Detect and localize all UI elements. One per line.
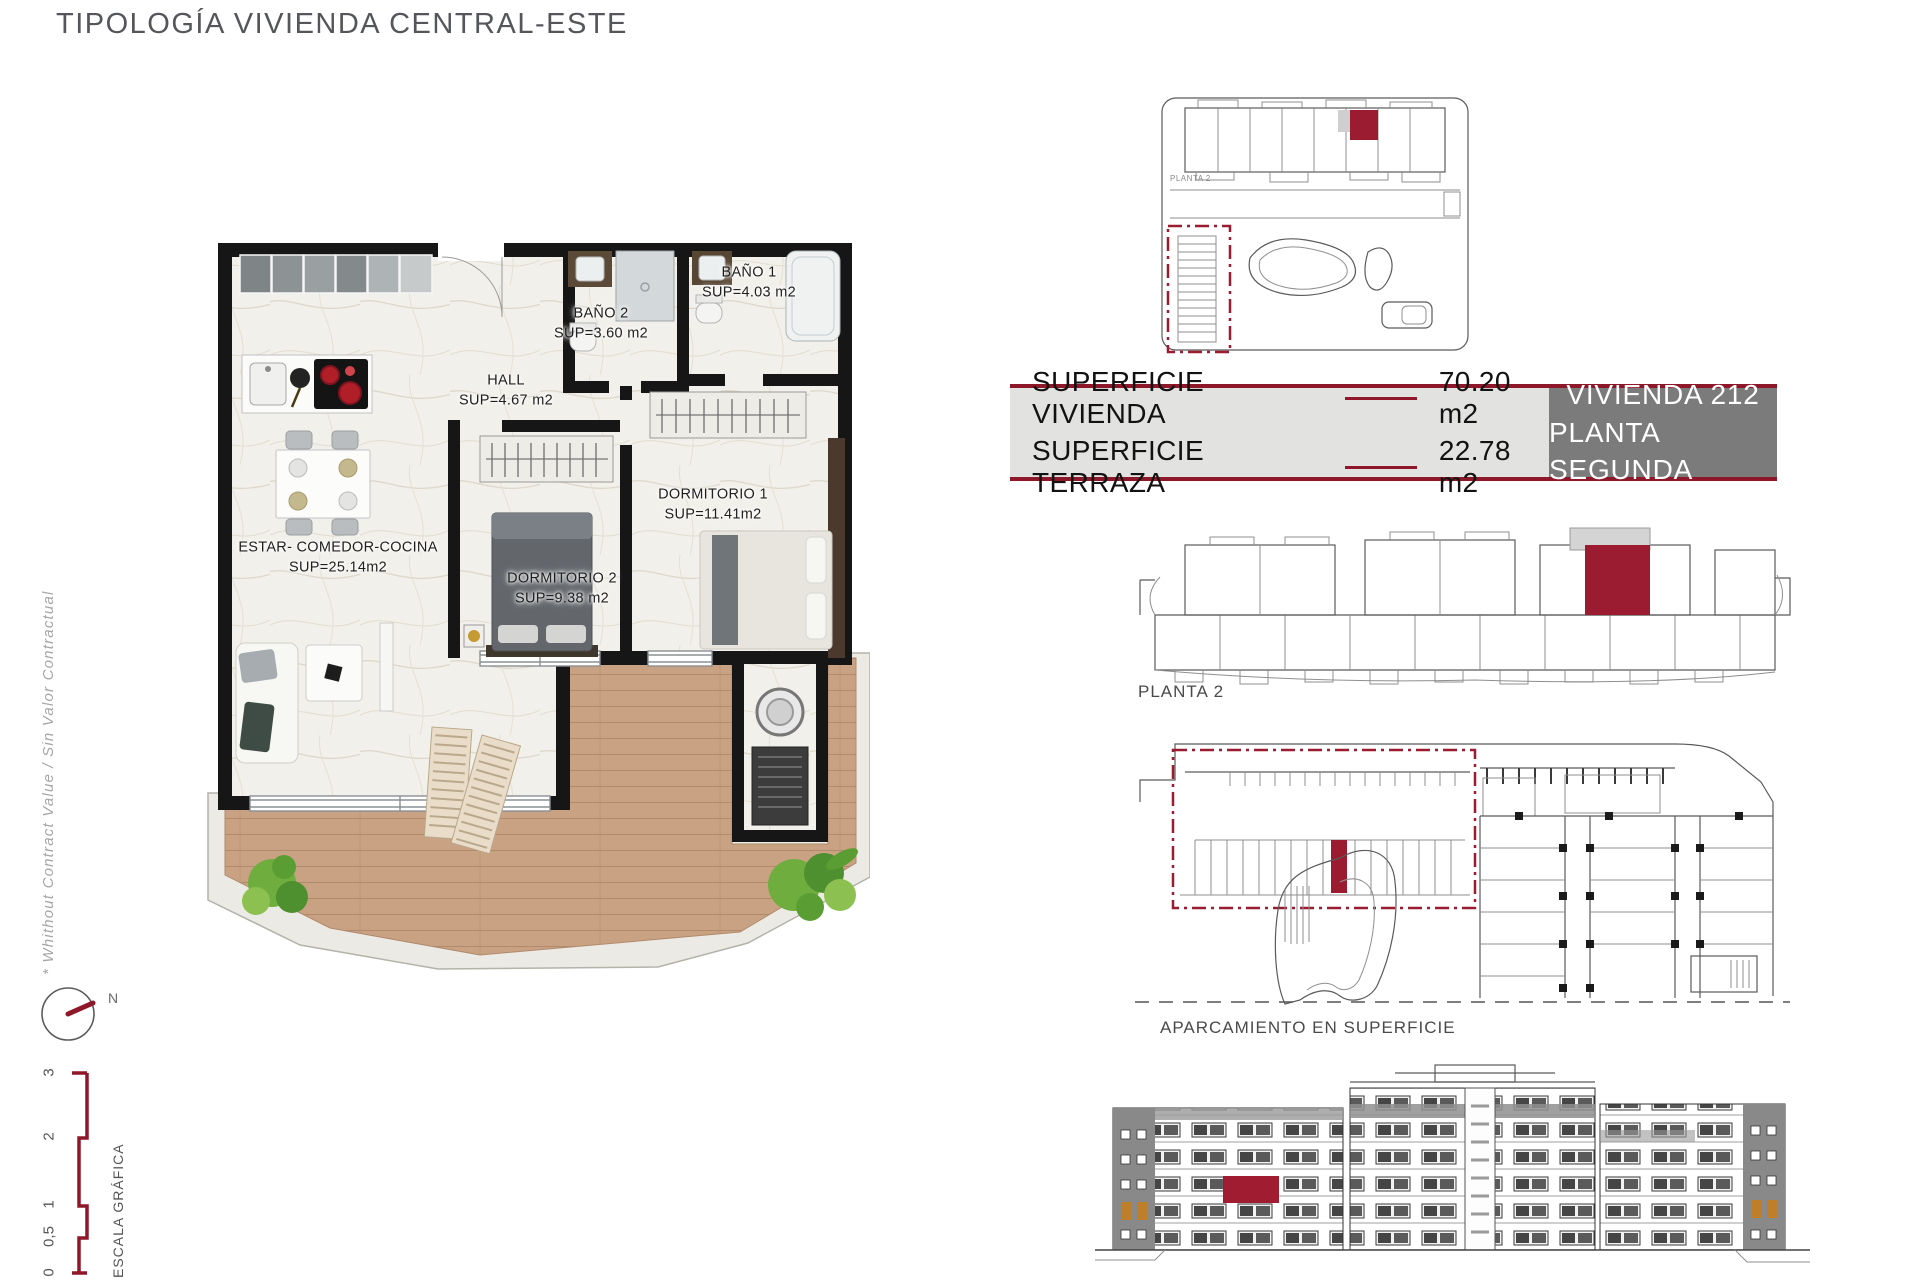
unit-floor: PLANTA SEGUNDA [1549,414,1777,490]
room-label-estar: ESTAR- COMEDOR-COCINASUP=25.14m2 [238,538,437,577]
siteplan-label: PLANTA 2 [1170,174,1211,183]
dash-rule [1345,397,1417,400]
unit-number: VIVIENDA 212 [1566,376,1759,414]
room-label-bano2: BAÑO 2SUP=3.60 m2 [554,304,648,343]
planta2-diagram [1130,520,1800,705]
scale-bar-icon [64,1068,98,1278]
scale-tick: 1 [41,1188,58,1222]
compass-icon [36,980,106,1050]
room-label-dorm1: DORMITORIO 1SUP=11.41m2 [658,485,768,524]
contract-note: * Whithout Contract Value / Sin Valor Co… [40,590,57,975]
compass-north-label: N [108,990,118,1006]
surface-label: SUPERFICIE TERRAZA [1032,435,1335,499]
scale-tick: 0,5 [41,1220,58,1254]
scale-label: ESCALA GRÁFICA [110,1143,126,1278]
scale-tick: 2 [41,1120,58,1154]
room-label-dorm2: DORMITORIO 2SUP=9.38 m2 [507,569,617,608]
parking-diagram [1135,740,1805,1012]
room-label-hall: HALLSUP=4.67 m2 [459,371,553,410]
siteplan-diagram [1150,90,1480,370]
planta2-label: PLANTA 2 [1138,682,1224,702]
surface-value: 70.20 m2 [1439,366,1549,430]
scale-bar: 3 2 1 0,5 0 ESCALA GRÁFICA [36,1068,146,1278]
unit-badge: VIVIENDA 212 PLANTA SEGUNDA [1549,388,1777,477]
floorplan: ESTAR- COMEDOR-COCINASUP=25.14m2 HALLSUP… [180,195,870,970]
parking-label: APARCAMIENTO EN SUPERFICIE [1160,1018,1456,1038]
plan-sheet: TIPOLOGÍA VIVIENDA CENTRAL-ESTE * Whitho… [0,0,1920,1280]
elevation-diagram [1095,1060,1810,1272]
surface-row-vivienda: SUPERFICIE VIVIENDA 70.20 m2 [1032,366,1549,430]
scale-tick: 3 [41,1056,58,1090]
info-table: SUPERFICIE VIVIENDA 70.20 m2 SUPERFICIE … [1010,384,1777,481]
page-title: TIPOLOGÍA VIVIENDA CENTRAL-ESTE [56,8,628,41]
surface-row-terraza: SUPERFICIE TERRAZA 22.78 m2 [1032,435,1549,499]
compass: N [36,980,156,1050]
surface-rows: SUPERFICIE VIVIENDA 70.20 m2 SUPERFICIE … [1010,388,1549,477]
room-label-bano1: BAÑO 1SUP=4.03 m2 [702,263,796,302]
scale-tick: 0 [41,1256,58,1280]
surface-label: SUPERFICIE VIVIENDA [1032,366,1335,430]
surface-value: 22.78 m2 [1439,435,1549,499]
dash-rule [1345,466,1417,469]
